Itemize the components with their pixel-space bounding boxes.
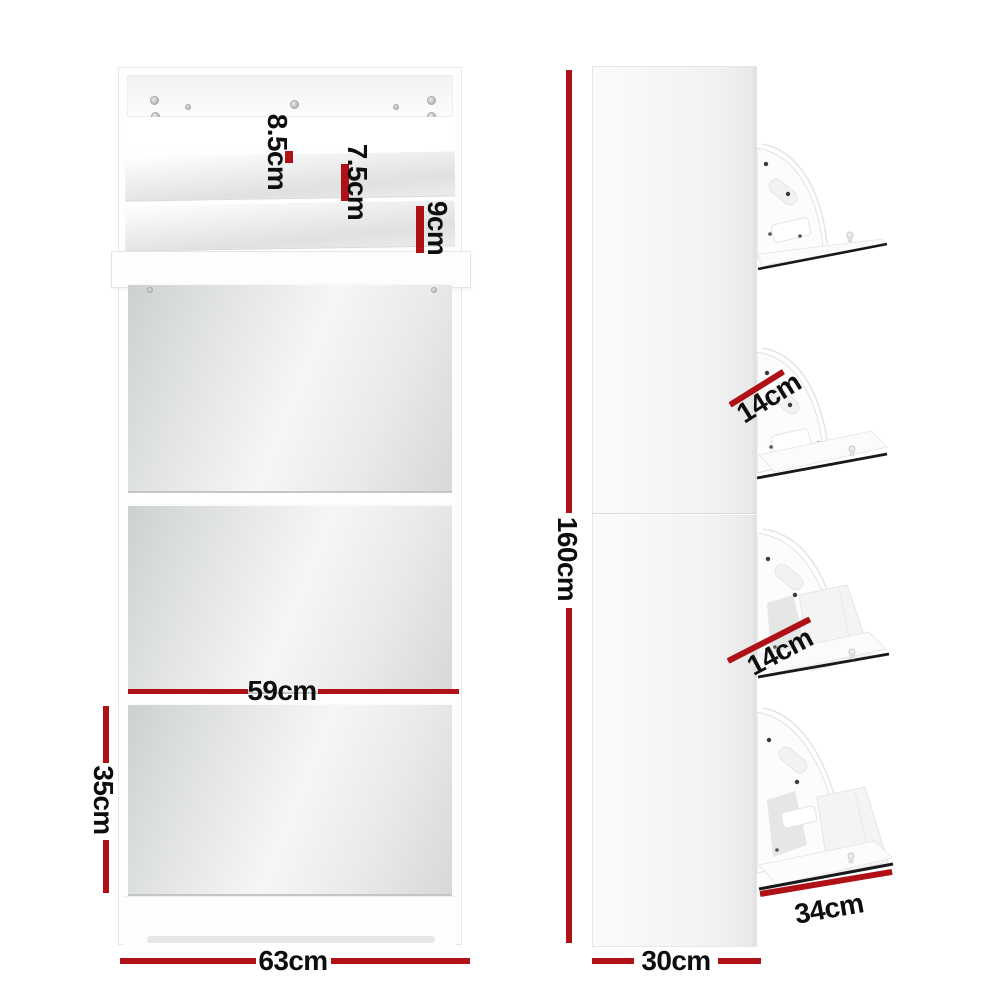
open-shoe-tray-3 (755, 525, 905, 700)
mirror-door-3 (128, 703, 452, 896)
top-compartment-shelf-2 (125, 198, 456, 251)
top-compartment-back-panel (127, 75, 453, 117)
dim-line-160cm-top (566, 70, 572, 513)
screw-icon (290, 100, 299, 109)
dim-line-35cm-top (103, 706, 109, 763)
screw-icon (185, 104, 191, 110)
open-shoe-tray-4 (755, 695, 905, 900)
dim-label-9cm: 9cm (423, 201, 451, 255)
dim-line-59cm-left (128, 689, 248, 694)
dim-label-7-5cm: 7.5cm (343, 144, 371, 220)
base-shadow (147, 936, 435, 943)
dim-label-35cm: 35cm (89, 765, 117, 834)
dim-line-35cm-bottom (103, 840, 109, 893)
dim-label-8-5cm: 8.5cm (263, 114, 291, 190)
front-view-cabinet (118, 67, 462, 945)
open-shoe-tray-2 (755, 345, 905, 495)
dim-label-30cm: 30cm (641, 947, 710, 975)
shoe-cabinet-dimension-diagram: 8.5cm 7.5cm 9cm 59cm 35cm 63cm (0, 0, 1000, 1000)
screw-icon (393, 104, 399, 110)
screw-icon (150, 96, 159, 105)
screw-icon (147, 287, 153, 293)
dim-line-63cm-left (120, 958, 256, 964)
side-view-panel (592, 66, 757, 947)
dim-label-63cm: 63cm (258, 947, 327, 975)
panel-seam (593, 513, 756, 514)
dim-line-63cm-right (331, 958, 470, 964)
screw-icon (431, 287, 437, 293)
dim-line-30cm-right (718, 958, 761, 964)
mirror-door-2 (128, 504, 452, 694)
dim-line-30cm-left (592, 958, 634, 964)
dim-label-59cm: 59cm (247, 677, 316, 705)
mirror-door-1 (128, 283, 452, 493)
dim-label-160cm: 160cm (553, 517, 581, 601)
dim-line-160cm-bottom (566, 608, 572, 943)
screw-icon (427, 96, 436, 105)
open-shoe-tray-1 (755, 128, 905, 278)
dim-line-59cm-right (318, 689, 459, 694)
